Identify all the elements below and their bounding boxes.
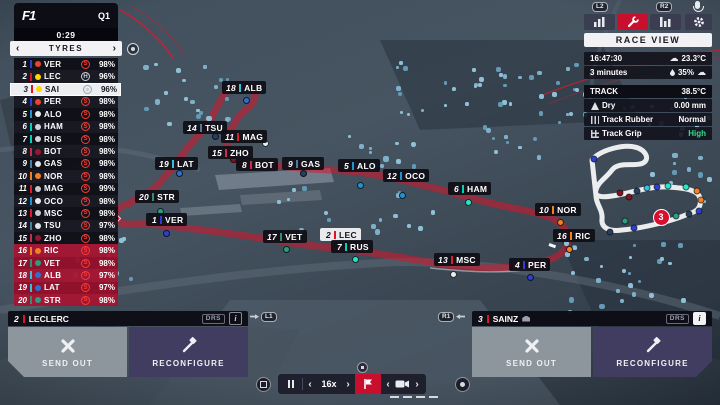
position: 18: [226, 83, 236, 93]
pause-button[interactable]: [280, 380, 302, 388]
team-logo-icon: [35, 61, 41, 67]
map-tag-per[interactable]: 4PER: [509, 258, 550, 271]
track-condition-label: Dry: [602, 101, 615, 110]
position: 7: [335, 242, 342, 252]
recenter-camera-button[interactable]: [127, 43, 139, 55]
drs-badge: DRS: [666, 314, 689, 324]
session-timer: 0:29: [14, 28, 118, 41]
position: 9: [286, 159, 293, 169]
map-tag-mag[interactable]: 11MAG: [221, 130, 267, 143]
tyre-condition: 98%: [93, 159, 115, 168]
send-out-button[interactable]: SEND OUT: [472, 327, 591, 377]
position: 2: [17, 72, 27, 81]
air-temp: 23.3°C: [681, 54, 706, 63]
weather-row-forecast: 3 minutes 35% ☁: [584, 66, 712, 79]
driver-panel-header: 2 LECLERC DRS i: [8, 311, 248, 326]
dry-warning-icon: [590, 101, 599, 110]
team-color-bar: [152, 193, 154, 201]
car-dot: [352, 256, 359, 263]
tyre-icon: S: [81, 147, 90, 156]
track-grip-icon: [590, 129, 599, 138]
driver-info-button[interactable]: i: [693, 312, 706, 325]
driver-code: STR: [157, 192, 175, 202]
camera-next-button[interactable]: ›: [410, 379, 424, 390]
cloud-icon: ☁: [697, 68, 706, 77]
car-dot: [566, 246, 573, 253]
team-logo-icon: [35, 285, 41, 291]
camera-button[interactable]: [395, 379, 410, 389]
bar-chart-icon: [594, 17, 605, 27]
send-out-button[interactable]: SEND OUT: [8, 327, 127, 377]
team-color-bar: [30, 259, 32, 267]
position: 5: [17, 110, 27, 119]
session-panel: F1 Q1 0:29: [14, 3, 118, 41]
f1-logo: F1: [22, 8, 35, 23]
position: 13: [17, 209, 27, 218]
team-color-bar: [30, 197, 32, 205]
session-stage-label: Q1: [98, 11, 110, 21]
team-color-bar: [30, 234, 32, 242]
game-screen: 18ALB14TSU11MAG15ZHO8BOT9GAS5ALO12OCO6HA…: [0, 0, 720, 405]
equalizer-icon: [660, 17, 671, 27]
position: 20: [139, 192, 149, 202]
team-color-bar: [237, 133, 239, 141]
car-dot: [176, 170, 183, 177]
map-tag-ver[interactable]: 1VER: [146, 213, 187, 226]
team-color-bar: [30, 185, 32, 193]
tools-icon: [180, 337, 198, 355]
tyre-condition: 98%: [93, 122, 115, 131]
position: 4: [513, 260, 520, 270]
r1-hint-badge: R1: [438, 312, 454, 322]
driver-code: LEC: [44, 72, 68, 81]
send-out-label: SEND OUT: [42, 359, 93, 368]
team-color-bar: [462, 185, 464, 193]
team-logo-icon: [35, 186, 41, 192]
tyre-icon: S: [81, 97, 90, 106]
humidity-icon: [670, 69, 675, 76]
track-row-grip: Track Grip High: [584, 127, 712, 140]
driver-code: PER: [44, 97, 68, 106]
swap-driver-hint-right: R1: [438, 312, 465, 322]
standings-row-per[interactable]: 4PERS98%: [14, 96, 118, 108]
tyre-condition: 98%: [93, 197, 115, 206]
team-logo-icon: [35, 161, 41, 167]
team-color-bar: [552, 206, 554, 214]
team-color-bar: [30, 148, 32, 156]
car-dot: [300, 170, 307, 177]
map-tag-oco[interactable]: 12OCO: [383, 169, 429, 182]
position: 18: [17, 271, 27, 280]
standings-row-vet[interactable]: 17VETS98%: [14, 257, 118, 269]
swap-arrow-icon: [456, 314, 465, 321]
position: 17: [17, 259, 27, 268]
driver-code: OCO: [405, 171, 425, 181]
standings-row-rus[interactable]: 7RUSS98%: [14, 133, 118, 145]
cross-icon: [59, 337, 77, 355]
rainfall-value: 0.00 mm: [674, 101, 706, 110]
tyre-icon: S: [81, 283, 90, 292]
tab-pit-session[interactable]: [617, 14, 648, 30]
position: 3: [18, 85, 28, 94]
camera-prev-button[interactable]: ‹: [381, 379, 395, 390]
team-logo-icon: [35, 223, 41, 229]
driver-code: NOR: [557, 205, 577, 215]
car-dot: [399, 192, 406, 199]
camera-mode-dashes: [390, 396, 438, 398]
standings-row-ver[interactable]: 1VERS98%: [14, 58, 118, 70]
tyre-condition: 98%: [93, 259, 115, 268]
tyre-icon: S: [81, 60, 90, 69]
car-dot: [357, 182, 364, 189]
position: 6: [452, 184, 459, 194]
position: 14: [17, 221, 27, 230]
standings-row-ham[interactable]: 6HAMS98%: [14, 121, 118, 133]
team-color-bar: [250, 161, 252, 169]
driver-code: MAG: [44, 184, 68, 193]
team-color-bar: [30, 247, 32, 255]
driver-code: RUS: [44, 135, 68, 144]
team-logo-icon: [35, 136, 41, 142]
tyre-icon: S: [81, 135, 90, 144]
driver-code: HAM: [44, 122, 68, 131]
team-color-bar: [160, 216, 162, 224]
tyre-condition: 98%: [93, 172, 115, 181]
team-color-bar: [30, 296, 32, 304]
standings-row-alb[interactable]: 18ALBS97%: [14, 269, 118, 281]
tyre-condition: 98%: [93, 135, 115, 144]
team-logo-icon: [35, 260, 41, 266]
swap-driver-hint-left: L1: [250, 312, 277, 322]
reconfigure-button[interactable]: RECONFIGURE: [593, 327, 712, 377]
driver-code: PER: [528, 260, 546, 270]
team-color-bar: [30, 222, 32, 230]
driver-name: LECLERC: [29, 314, 69, 324]
position: 5: [342, 161, 349, 171]
car-dot: [283, 246, 290, 253]
team-logo-icon: [35, 74, 41, 80]
driver-code: NOR: [44, 172, 68, 181]
track-row-rubber: Track Rubber Normal: [584, 113, 712, 126]
stop-camera-button[interactable]: [256, 377, 271, 392]
position: 14: [187, 123, 197, 133]
tyre-icon: [83, 85, 92, 94]
tab-standings[interactable]: [584, 14, 615, 30]
driver-code: BOT: [255, 160, 274, 170]
standings-column-selector[interactable]: ‹ TYRES ›: [10, 41, 122, 56]
standings-list: 1VERS98%2LECH96%3SAI96%4PERS98%5ALOS98%6…: [14, 58, 118, 306]
standings-row-ric[interactable]: 16RICS98%: [14, 244, 118, 256]
position: 12: [17, 197, 27, 206]
team-color-bar: [172, 160, 174, 168]
driver-code: LAT: [44, 283, 68, 292]
column-next-icon[interactable]: ›: [113, 43, 116, 54]
tools-icon: [644, 337, 662, 355]
tyre-condition: 98%: [93, 97, 115, 106]
position: 16: [17, 246, 27, 255]
tyre-icon: S: [81, 221, 90, 230]
playback-bar: ‹ 16x › ‹ ›: [278, 374, 426, 394]
position: 4: [17, 97, 27, 106]
tyre-icon: S: [81, 296, 90, 305]
track-row-dry: Dry 0.00 mm: [584, 99, 712, 112]
team-logo-icon: [35, 198, 41, 204]
position: 6: [17, 122, 27, 131]
map-tag-gas[interactable]: 9GAS: [282, 157, 324, 170]
team-logo-icon: [35, 272, 41, 278]
cloud-icon: ☁: [669, 54, 678, 63]
driver-code: ALO: [44, 110, 68, 119]
track-grip-value: High: [688, 129, 706, 138]
tyre-condition: 97%: [93, 221, 115, 230]
gear-icon: [693, 16, 705, 28]
position: 12: [387, 171, 397, 181]
speed-down-button[interactable]: ‹: [303, 379, 317, 390]
driver-name: SAINZ: [493, 314, 519, 324]
team-color-bar: [345, 243, 347, 251]
position: 13: [438, 255, 448, 265]
standings-row-msc[interactable]: 13MSCS98%: [14, 207, 118, 219]
position: 17: [267, 232, 277, 242]
position: 8: [17, 147, 27, 156]
map-tag-ham[interactable]: 6HAM: [448, 182, 491, 195]
tyre-icon: S: [81, 122, 90, 131]
driver-panel-sainz: 3 SAINZ DRS i SEND OUT RECONFIGURE: [472, 311, 712, 377]
team-color-bar: [334, 231, 336, 239]
position: 8: [240, 160, 247, 170]
tyre-icon: S: [81, 209, 90, 218]
position: 9: [17, 159, 27, 168]
team-color-bar: [30, 284, 32, 292]
session-clock: 16:47:30: [590, 54, 622, 63]
tyre-condition: 98%: [93, 234, 115, 243]
driver-code: ALB: [44, 271, 68, 280]
standings-row-alo[interactable]: 5ALOS98%: [14, 108, 118, 120]
l1-hint-badge: L1: [261, 312, 277, 322]
driver-code: GAS: [44, 159, 68, 168]
driver-code: MAG: [242, 132, 263, 142]
standings-row-sai[interactable]: 3SAI96%: [10, 83, 121, 96]
team-color-bar: [451, 256, 453, 264]
speed-up-button[interactable]: ›: [341, 379, 355, 390]
column-title: TYRES: [49, 44, 83, 53]
map-tag-str[interactable]: 20STR: [135, 190, 179, 203]
team-color-bar: [352, 162, 354, 170]
flag-icon: [363, 378, 374, 390]
tyre-condition: 98%: [93, 60, 115, 69]
tyre-condition: 99%: [93, 184, 115, 193]
team-color-bar: [280, 233, 282, 241]
team-color-bar: [30, 160, 32, 168]
track-rubber-label: Track Rubber: [602, 115, 653, 124]
reconfigure-button[interactable]: RECONFIGURE: [129, 327, 248, 377]
team-color-bar: [30, 73, 32, 81]
driver-code: ALB: [244, 83, 262, 93]
tyre-icon: S: [81, 184, 90, 193]
tyre-condition: 97%: [93, 283, 115, 292]
driver-code: OCO: [44, 197, 68, 206]
standings-row-mag[interactable]: 11MAGS99%: [14, 183, 118, 195]
standings-row-lat[interactable]: 19LATS97%: [14, 282, 118, 294]
driver-code: VER: [44, 60, 68, 69]
driver-code: VER: [165, 215, 183, 225]
view-tabs: [584, 14, 681, 30]
position: 15: [17, 234, 27, 243]
position: 7: [17, 135, 27, 144]
driver-position: 3: [478, 314, 483, 324]
track-title: TRACK: [590, 87, 618, 96]
driver-code: TSU: [44, 221, 68, 230]
driver-code: RIC: [44, 246, 68, 255]
map-tag-nor[interactable]: 10NOR: [535, 203, 581, 216]
driver-code: VET: [44, 259, 68, 268]
map-tag-alb[interactable]: 18ALB: [222, 81, 266, 94]
position: 10: [17, 172, 27, 181]
driver-code: VET: [285, 232, 302, 242]
settings-button[interactable]: [685, 14, 712, 30]
standings-row-gas[interactable]: 9GASS98%: [14, 158, 118, 170]
team-logo-icon: [35, 149, 41, 155]
track-header: TRACK 38.5°C: [584, 85, 712, 98]
team-logo-icon: [35, 173, 41, 179]
team-logo-icon: [35, 99, 41, 105]
driver-position: 2: [14, 314, 19, 324]
car-dot: [527, 274, 534, 281]
weather-row-time: 16:47:30 ☁ 23.3°C: [584, 52, 712, 65]
team-color-bar: [570, 232, 572, 240]
team-logo-icon: [35, 124, 41, 130]
driver-panel-header: 3 SAINZ DRS i: [472, 311, 712, 326]
driver-code: HAM: [467, 184, 487, 194]
driver-code: RUS: [350, 242, 369, 252]
driver-info-button[interactable]: i: [229, 312, 242, 325]
position: 1: [17, 60, 27, 69]
driver-code: RIC: [575, 231, 591, 241]
camera-icon: [395, 379, 410, 389]
tyre-icon: H: [81, 72, 90, 81]
position: 2: [324, 230, 331, 240]
time-remaining: 3 minutes: [590, 68, 627, 77]
driver-code: BOT: [44, 147, 68, 156]
standings-row-nor[interactable]: 10NORS98%: [14, 170, 118, 182]
driver-code: ZHO: [230, 148, 249, 158]
car-dot: [465, 199, 472, 206]
driver-code: MSC: [456, 255, 476, 265]
team-color-bar: [31, 85, 33, 93]
team-logo-icon: [36, 86, 42, 92]
position: 11: [17, 184, 27, 193]
map-tag-bot[interactable]: 8BOT: [236, 158, 278, 171]
broadcast-camera-button[interactable]: [455, 377, 470, 392]
tyre-icon: S: [81, 246, 90, 255]
cross-icon: [523, 337, 541, 355]
driver-code: ZHO: [44, 234, 68, 243]
driver-code: ALO: [357, 161, 376, 171]
race-view-button[interactable]: RACE VIEW: [584, 33, 712, 47]
driver-code: STR: [44, 296, 68, 305]
position: 11: [225, 132, 234, 142]
standings-row-lec[interactable]: 2LECH96%: [14, 70, 118, 82]
map-tag-alo[interactable]: 5ALO: [338, 159, 380, 172]
standings-row-oco[interactable]: 12OCOS98%: [14, 195, 118, 207]
team-color-bar: [30, 209, 32, 217]
car-dot: [557, 219, 564, 226]
flags-button[interactable]: [355, 374, 381, 394]
tyre-condition: 96%: [93, 72, 115, 81]
tab-timing[interactable]: [650, 14, 681, 30]
tyre-condition: 98%: [93, 296, 115, 305]
driver-panel-leclerc: 2 LECLERC DRS i SEND OUT RECONFIGURE: [8, 311, 248, 377]
lb-hint-badge: L2: [592, 2, 608, 12]
track-temp: 38.5°C: [681, 87, 706, 96]
team-color-bar: [30, 135, 32, 143]
drs-badge: DRS: [202, 314, 225, 324]
team-color-bar: [30, 110, 32, 118]
standings-row-zho[interactable]: 15ZHOS98%: [14, 232, 118, 244]
rb-hint-badge: R2: [656, 2, 672, 12]
team-color-bar: [30, 123, 32, 131]
team-color-bar: [30, 172, 32, 180]
swap-arrow-icon: [250, 314, 259, 321]
track-grip-label: Track Grip: [602, 129, 642, 138]
team-logo-icon: [35, 210, 41, 216]
tyre-condition: 98%: [93, 147, 115, 156]
tyre-icon: S: [81, 197, 90, 206]
team-logo-icon: [35, 235, 41, 241]
map-tag-lat[interactable]: 19LAT: [155, 157, 198, 170]
driver-code: LEC: [339, 230, 357, 240]
tyre-condition: 98%: [93, 110, 115, 119]
team-color-bar: [200, 124, 202, 132]
tyre-icon: S: [81, 172, 90, 181]
sim-speed-value: 16x: [317, 379, 341, 389]
standings-row-str[interactable]: 20STRS98%: [14, 294, 118, 306]
tyre-icon: S: [81, 259, 90, 268]
position: 19: [159, 159, 169, 169]
tyre-icon: S: [81, 159, 90, 168]
position: 15: [212, 148, 222, 158]
reconfigure-label: RECONFIGURE: [616, 359, 688, 368]
driver-code: GAS: [301, 159, 320, 169]
tyre-icon: S: [81, 271, 90, 280]
track-rubber-value: Normal: [678, 115, 706, 124]
car-dot: [212, 133, 219, 140]
car-dot: [243, 97, 250, 104]
position: 20: [17, 296, 27, 305]
map-tag-rus[interactable]: 7RUS: [331, 240, 373, 253]
minimap-selected-driver: 3: [653, 209, 670, 226]
position: 16: [557, 231, 567, 241]
team-logo-icon: [35, 297, 41, 303]
team-color-bar: [296, 160, 298, 168]
team-logo-icon: [35, 111, 41, 117]
standings-row-tsu[interactable]: 14TSUS97%: [14, 220, 118, 232]
map-tag-ric[interactable]: 16RIC: [553, 229, 595, 242]
voice-icon: [695, 1, 700, 9]
car-dot: [163, 230, 170, 237]
team-color-bar: [30, 271, 32, 279]
car-dot: [450, 271, 457, 278]
column-prev-icon[interactable]: ‹: [16, 43, 19, 54]
map-tag-vet[interactable]: 17VET: [263, 230, 307, 243]
garage-icon: [522, 316, 530, 322]
standings-row-bot[interactable]: 8BOTS98%: [14, 145, 118, 157]
position: 19: [17, 283, 27, 292]
map-tag-msc[interactable]: 13MSC: [434, 253, 480, 266]
driver-code: LAT: [177, 159, 194, 169]
wrench-icon: [627, 16, 639, 28]
team-color-bar: [30, 98, 32, 106]
